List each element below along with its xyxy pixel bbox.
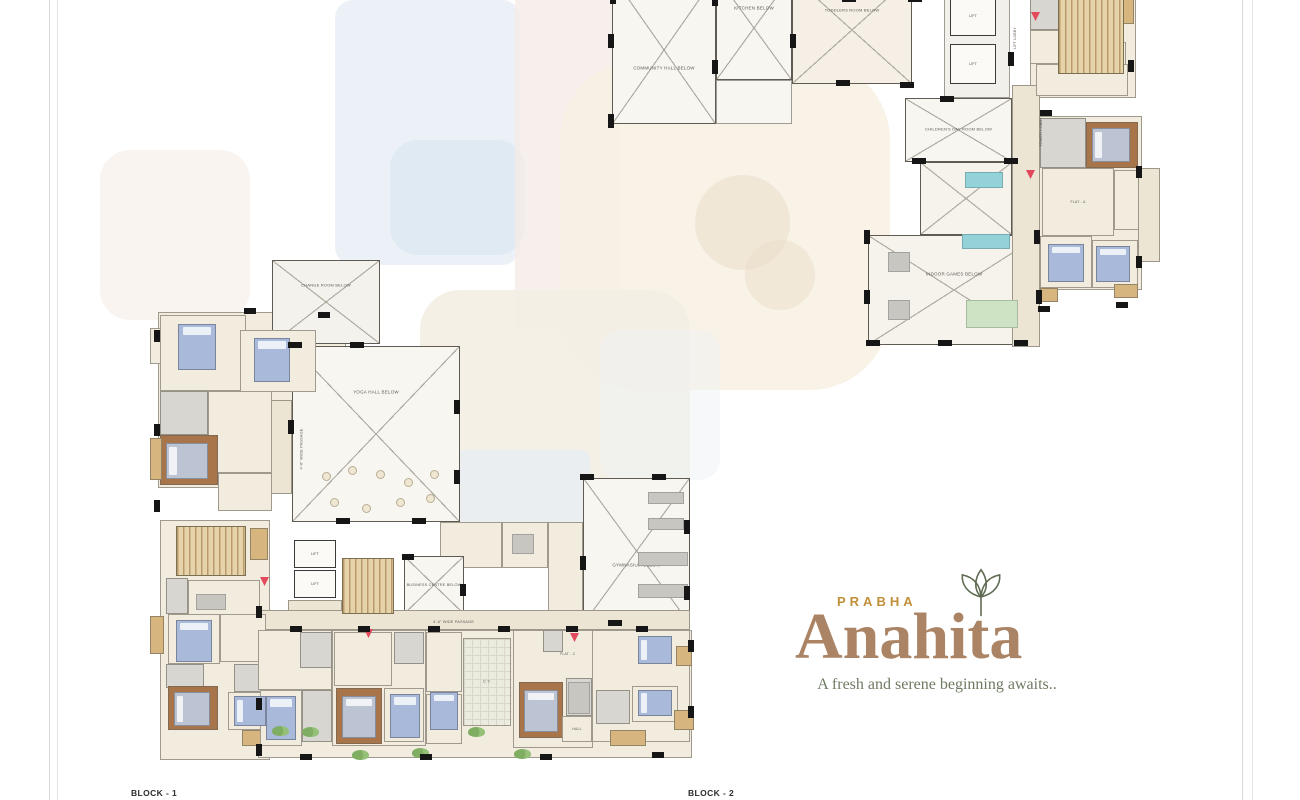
wall-tie — [1014, 340, 1028, 346]
room — [166, 664, 204, 688]
room — [270, 400, 292, 494]
bed — [174, 692, 210, 726]
staircase — [1058, 0, 1124, 74]
block-1-label: BLOCK - 1 — [131, 788, 177, 798]
wall-tie — [540, 754, 552, 760]
staircase — [176, 526, 246, 576]
page-border-line — [49, 0, 50, 800]
chair — [426, 494, 435, 503]
amenity-room: YOGA HALL BELOW — [292, 346, 460, 522]
wall-tie — [420, 754, 432, 760]
room — [250, 528, 268, 560]
bed-pillow — [641, 640, 647, 661]
bed — [524, 690, 558, 732]
furniture-prop — [196, 594, 226, 610]
room — [610, 730, 646, 746]
wall-tie — [154, 424, 160, 436]
shrub — [352, 750, 369, 760]
bed — [1092, 128, 1130, 162]
wall-tie — [688, 706, 694, 718]
wall-tie — [1036, 290, 1042, 304]
wall-tie — [256, 606, 262, 618]
room-label: C.Y. — [464, 680, 510, 685]
bed-pillow — [1095, 132, 1102, 158]
wall-tie — [256, 744, 262, 756]
wall-tie — [460, 584, 466, 596]
wall-tie — [288, 420, 294, 434]
room — [334, 632, 392, 686]
room: FLAT - A — [1042, 168, 1114, 236]
background-wash — [745, 240, 815, 310]
wall-tie — [908, 0, 922, 2]
room — [1114, 284, 1138, 298]
shrub — [272, 726, 289, 736]
wall-tie — [684, 520, 690, 534]
wall-tie — [358, 626, 370, 632]
bed-pillow — [169, 447, 177, 474]
room-label: KITCHEN BELOW — [717, 5, 791, 10]
furniture-prop — [638, 552, 688, 566]
room — [150, 616, 164, 654]
logo: PRABHA Anahita A fresh and serene beginn… — [793, 570, 1081, 710]
wall-tie — [1004, 158, 1018, 164]
chair — [430, 470, 439, 479]
lift: LIFT — [950, 44, 996, 84]
wall-tie — [608, 114, 614, 128]
furniture-prop — [962, 234, 1010, 249]
wall-tie — [1136, 256, 1142, 268]
room — [150, 438, 162, 480]
wall-tie — [498, 626, 510, 632]
room-label: COMMUNITY HALL BELOW — [613, 65, 715, 70]
wall-tie — [336, 518, 350, 524]
wall-tie — [1136, 166, 1142, 178]
bed-pillow — [394, 697, 416, 705]
wall-tie — [712, 0, 718, 6]
wall-tie — [912, 158, 926, 164]
wall-tie — [836, 80, 850, 86]
plan-annotation: 4'-6" WIDE PASSAGE — [300, 428, 304, 469]
wall-tie — [608, 34, 614, 48]
furniture-prop — [888, 252, 910, 272]
bed — [166, 443, 208, 479]
brochure-page: COMMUNITY HALL BELOWKITCHEN BELOWTODDLER… — [0, 0, 1300, 800]
room-label: FLAT - A — [1043, 200, 1113, 204]
wall-tie — [1040, 110, 1052, 116]
wall-tie — [688, 640, 694, 652]
wall-tie — [864, 230, 870, 244]
amenity-room: TODDLERS ROOM BELOW — [792, 0, 912, 84]
chair — [362, 504, 371, 513]
bed-pillow — [434, 695, 455, 701]
block-2-label: BLOCK - 2 — [688, 788, 734, 798]
amenity-room: KITCHEN BELOW — [716, 0, 792, 80]
room — [394, 632, 424, 664]
bed — [638, 636, 672, 664]
room — [166, 578, 188, 614]
bed-pillow — [177, 696, 184, 722]
bed — [638, 690, 672, 716]
bed-pillow — [1052, 247, 1079, 253]
wall-tie — [580, 556, 586, 570]
amenity-room: COMMUNITY HALL BELOW — [612, 0, 716, 124]
room-label: CHANGE ROOM BELOW — [273, 283, 379, 288]
wall-tie — [940, 96, 954, 102]
shrub — [302, 727, 319, 737]
wall-tie — [566, 626, 578, 632]
wall-tie — [300, 754, 312, 760]
plan-annotation: 4'-6" WIDE PASSAGE — [433, 620, 474, 624]
wall-tie — [1116, 302, 1128, 308]
room-label: HALL — [563, 727, 591, 731]
chair — [330, 498, 339, 507]
background-wash — [100, 150, 250, 320]
furniture-prop — [648, 492, 684, 504]
wall-tie — [350, 342, 364, 348]
furniture-prop — [965, 172, 1003, 188]
room-label: CHILDREN'S DAY ROOM BELOW — [906, 128, 1011, 133]
room — [596, 690, 630, 724]
amenity-room: CHILDREN'S DAY ROOM BELOW — [905, 98, 1012, 162]
wall-tie — [412, 518, 426, 524]
bed — [178, 324, 216, 370]
wall-tie — [290, 626, 302, 632]
amenity-room: BUSINESS CENTRE BELOW — [404, 556, 464, 614]
bed-pillow — [237, 700, 243, 722]
background-wash — [600, 330, 720, 480]
bed-pillow — [641, 693, 647, 712]
wall-tie — [244, 308, 256, 314]
chair — [404, 478, 413, 487]
room-label: YOGA HALL BELOW — [293, 390, 459, 395]
wall-tie — [288, 342, 302, 348]
wall-tie — [790, 34, 796, 48]
bed-pillow — [346, 699, 372, 706]
chair — [376, 470, 385, 479]
page-border-line — [57, 0, 58, 800]
chair — [322, 472, 331, 481]
wall-tie — [652, 752, 664, 758]
bed-pillow — [270, 699, 292, 707]
lift: LIFT — [950, 0, 996, 36]
plan-annotation: TOWER LOBBY — [1039, 117, 1043, 147]
bed — [176, 620, 212, 662]
plan-annotation: LIFT LOBBY — [1013, 27, 1017, 49]
shrub — [468, 727, 485, 737]
room — [426, 632, 462, 692]
wall-tie — [636, 626, 648, 632]
page-border-line — [1252, 0, 1253, 800]
wall-tie — [900, 82, 914, 88]
plan-annotation: FLAT - C — [560, 652, 575, 656]
wall-tie — [580, 474, 594, 480]
bed — [390, 694, 420, 738]
bed-pillow — [1100, 249, 1126, 255]
wall-tie — [1038, 306, 1050, 312]
bed-pillow — [258, 341, 285, 349]
wall-tie — [428, 626, 440, 632]
wall-tie — [652, 474, 666, 480]
room — [300, 632, 332, 668]
room — [543, 630, 563, 652]
room — [218, 473, 272, 511]
lift: LIFT — [294, 570, 336, 598]
staircase — [342, 558, 394, 614]
bed-pillow — [180, 623, 207, 630]
wall-tie — [1034, 230, 1040, 244]
room: HALL — [562, 716, 592, 742]
wall-tie — [454, 400, 460, 414]
room — [160, 391, 208, 435]
wall-tie — [684, 586, 690, 600]
furniture-prop — [638, 584, 688, 598]
wall-tie — [842, 0, 856, 2]
wall-tie — [154, 330, 160, 342]
chair — [396, 498, 405, 507]
bed — [430, 692, 458, 730]
wall-tie — [318, 312, 330, 318]
wall-tie — [402, 554, 414, 560]
project-name: Anahita — [795, 604, 1081, 670]
room — [1138, 168, 1160, 262]
wall-tie — [256, 698, 262, 710]
floor-plan-drawing: COMMUNITY HALL BELOWKITCHEN BELOWTODDLER… — [0, 0, 1300, 800]
room — [1114, 170, 1140, 230]
room-label: TODDLERS ROOM BELOW — [793, 9, 911, 14]
tagline: A fresh and serene beginning awaits.. — [793, 676, 1081, 694]
furniture-prop — [966, 300, 1018, 328]
room — [1040, 288, 1058, 302]
shrub — [514, 749, 531, 759]
wall-tie — [866, 340, 880, 346]
room: C.Y. — [463, 638, 511, 726]
bed — [1096, 246, 1130, 282]
wall-tie — [1008, 52, 1014, 66]
wall-tie — [610, 0, 616, 4]
wall-tie — [864, 290, 870, 304]
page-border-line — [1242, 0, 1243, 800]
lift: LIFT — [294, 540, 336, 568]
wall-tie — [154, 500, 160, 512]
wall-tie — [1128, 60, 1134, 72]
room-label: BUSINESS CENTRE BELOW — [405, 583, 463, 587]
furniture-prop — [568, 682, 590, 714]
bed — [254, 338, 290, 382]
wall-tie — [712, 60, 718, 74]
background-wash — [440, 450, 590, 525]
room — [1040, 118, 1086, 168]
room — [548, 522, 583, 612]
bed-pillow — [183, 327, 212, 335]
chair — [348, 466, 357, 475]
wall-tie — [608, 620, 622, 626]
wall-tie — [454, 470, 460, 484]
bed-pillow — [528, 693, 554, 700]
background-wash — [390, 140, 525, 255]
wall-tie — [938, 340, 952, 346]
furniture-prop — [888, 300, 910, 320]
room — [716, 80, 792, 124]
furniture-prop — [512, 534, 534, 554]
bed — [342, 696, 376, 738]
bed — [1048, 244, 1084, 282]
furniture-prop — [648, 518, 684, 530]
